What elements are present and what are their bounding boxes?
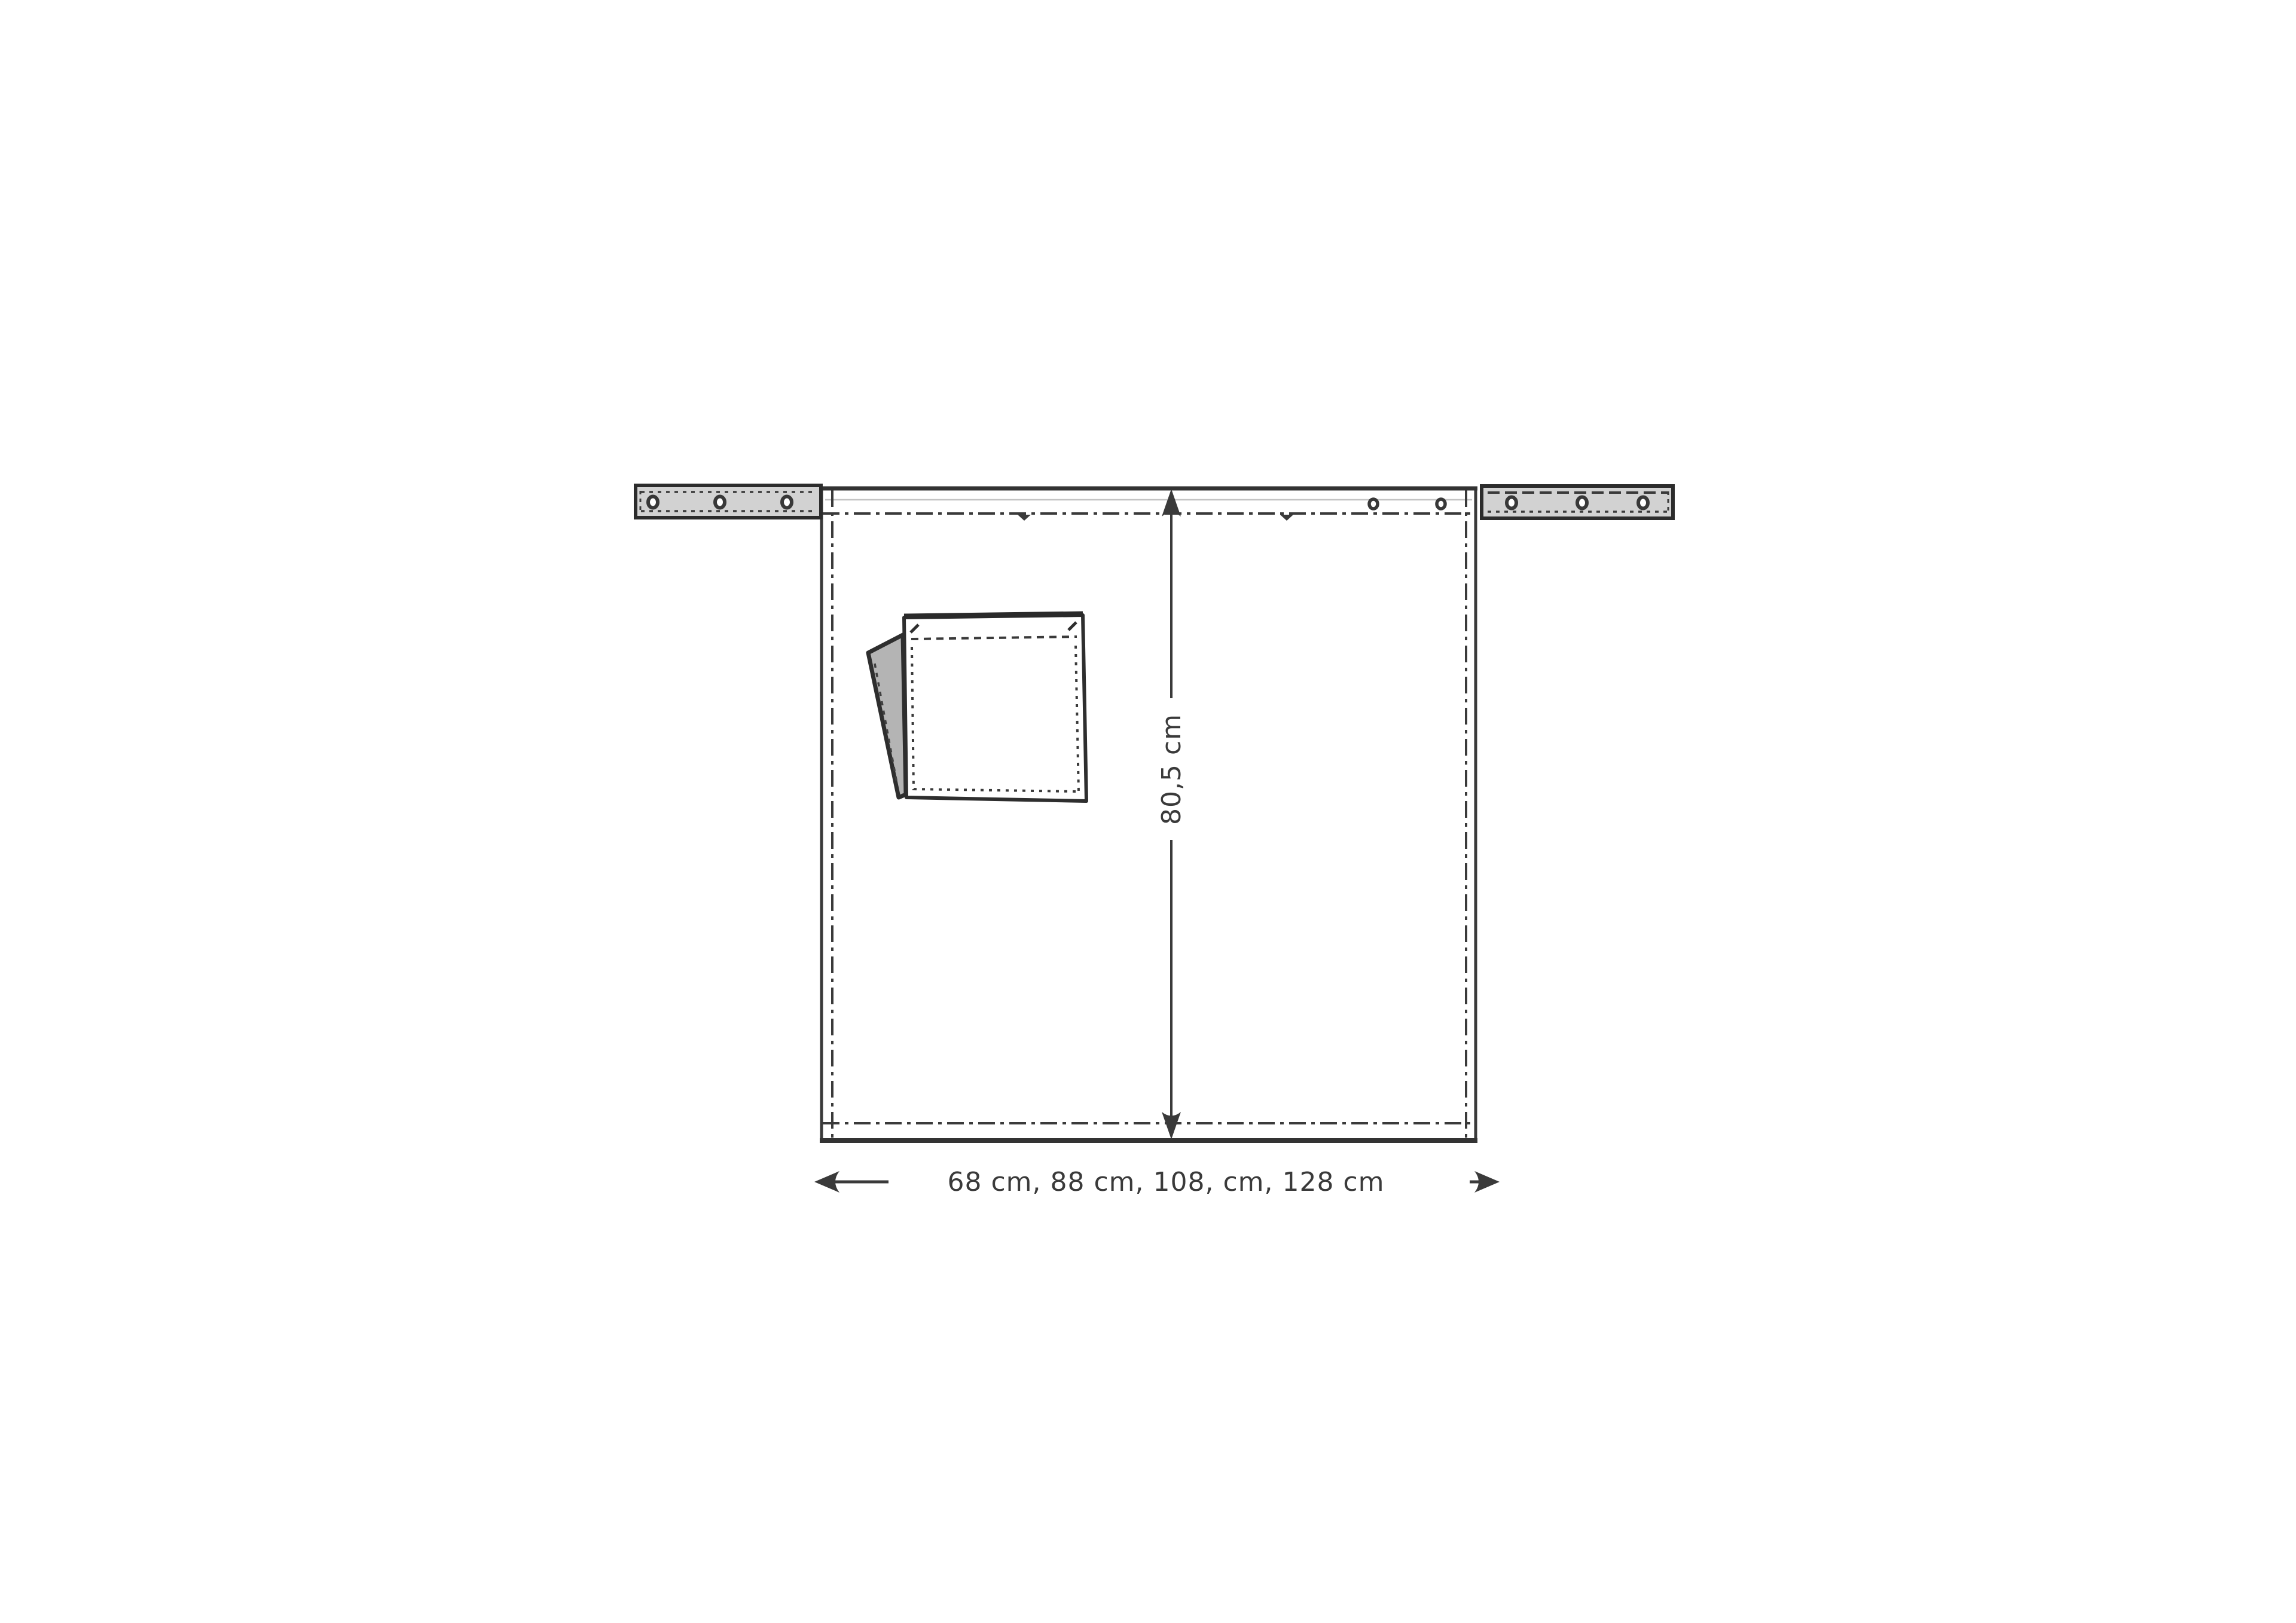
pocket — [904, 614, 1086, 801]
apron-body — [822, 488, 1476, 1141]
height-dimension-label: 80,5 cm — [1156, 714, 1187, 825]
eyelet-icon — [1638, 497, 1648, 509]
left-waist-strap — [636, 485, 821, 518]
width-dimension-label: 68 cm, 88 cm, 108, cm, 128 cm — [947, 1167, 1384, 1197]
eyelet-icon — [1369, 499, 1378, 509]
eyelet-icon — [782, 497, 792, 508]
width-dimension: 68 cm, 88 cm, 108, cm, 128 cm — [814, 1167, 1500, 1197]
drawing-canvas: 80,5 cm 68 cm, 88 cm, 108, cm, 128 cm — [0, 0, 2296, 1623]
eyelet-icon — [1577, 497, 1587, 509]
eyelet-icon — [648, 497, 658, 508]
pocket-top-edge — [904, 614, 1083, 616]
eyelet-icon — [1437, 499, 1445, 509]
apron-technical-drawing: 80,5 cm 68 cm, 88 cm, 108, cm, 128 cm — [0, 0, 2296, 1623]
pocket-body — [904, 615, 1086, 801]
eyelet-icon — [715, 497, 725, 508]
eyelet-icon — [1507, 497, 1516, 509]
right-waist-strap — [1482, 486, 1673, 518]
